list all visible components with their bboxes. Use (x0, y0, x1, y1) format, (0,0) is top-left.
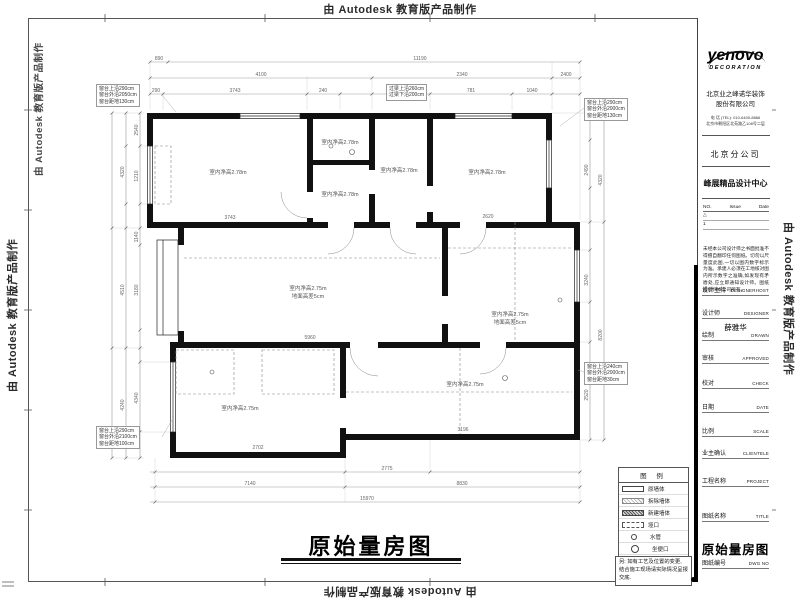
company-contact: 电 话 (TEL): 010-6400-8866 北京市朝阳区北苑路乙108号二… (698, 115, 772, 128)
svg-text:7140: 7140 (244, 481, 255, 487)
annotation-line: 窗台距地100cm (99, 441, 137, 447)
legend-item: 坐便口 (619, 543, 688, 555)
sheet-name: 原始量房图 (698, 539, 772, 558)
svg-text:2520: 2520 (584, 389, 590, 400)
window-annotation-2: 窗台上沿290cm 窗台外沿2000cm 窗台距地130cm (584, 98, 628, 121)
svg-text:3743: 3743 (229, 88, 240, 94)
opening-swatch-icon (622, 522, 644, 528)
legend-item: 原墙体 (619, 483, 688, 495)
svg-text:11190: 11190 (413, 56, 426, 62)
svg-text:4320: 4320 (598, 174, 604, 185)
annotation-line: 窗台外沿2000cm (587, 106, 625, 112)
annotation-line: 窗台外沿2000cm (587, 370, 625, 376)
door-arcs (281, 192, 506, 376)
beam-annotation: 过梁上沿260cm 过梁下沿200cm (386, 84, 427, 101)
svg-text:室内净高2.78m: 室内净高2.78m (468, 168, 506, 176)
svg-text:室内净高2.78m: 室内净高2.78m (321, 190, 359, 198)
svg-text:2340: 2340 (456, 72, 467, 78)
title-underline (281, 558, 461, 561)
svg-text:2490: 2490 (584, 164, 590, 175)
svg-text:15970: 15970 (360, 496, 374, 502)
svg-text:1140: 1140 (134, 231, 140, 242)
row-designerhost: 设计主持DESIGNERHOST (702, 285, 769, 296)
row-dwgno: 图纸编号DWG NO (702, 558, 769, 569)
legend-item: 拆除墙体 (619, 495, 688, 507)
annotation-line: 窗台外沿2100cm (99, 434, 137, 440)
svg-text:室内净高2.75m: 室内净高2.75m (446, 380, 484, 388)
svg-text:2775: 2775 (381, 466, 392, 472)
company-line: 北京业之峰诺华装饰 (698, 90, 772, 100)
legend-note: 另: 如有工艺及位置的变更, 结合施工现场请实际情况呈报交底. (615, 556, 692, 586)
row-drawn: 绘制DRAWN (702, 330, 769, 341)
issue-header: NO. Issue Date (703, 205, 769, 212)
legend: 图 例 原墙体 拆除墙体 新建墙体 垭口 水管 坐便口 地漏 (618, 467, 689, 567)
annotation-line: 窗台距地130cm (587, 113, 625, 119)
issue-table: NO. Issue Date △ 1 (703, 205, 769, 230)
svg-text:2620: 2620 (482, 214, 493, 220)
window-annotation-1: 窗台上沿290cm 窗台外沿2050cm 窗台距地130cm (96, 84, 140, 107)
branch-name: 北京分公司 (698, 149, 772, 160)
svg-text:781: 781 (467, 88, 476, 94)
svg-text:室内净高2.78m: 室内净高2.78m (321, 138, 359, 146)
title-underline (281, 563, 461, 564)
legend-item: 新建墙体 (619, 507, 688, 519)
toilet-outlet-icon (631, 545, 639, 553)
demolish-wall-swatch-icon (622, 498, 644, 504)
original-wall-swatch-icon (622, 486, 644, 492)
svg-text:1210: 1210 (134, 170, 140, 181)
window-annotation-4: 窗台上沿290cm 窗台外沿2100cm 窗台距地100cm (96, 426, 140, 449)
svg-text:4100: 4100 (255, 72, 266, 78)
svg-text:240: 240 (319, 88, 328, 94)
svg-text:3196: 3196 (457, 427, 468, 433)
walls (147, 113, 580, 458)
legend-label: 水管 (650, 533, 661, 541)
legend-label: 垭口 (648, 521, 659, 529)
legend-label: 坐便口 (652, 545, 669, 553)
svg-text:4240: 4240 (120, 399, 126, 410)
issue-row: 1 (703, 221, 769, 230)
annotation-line: 过梁下沿200cm (389, 92, 424, 98)
title-block-dot (691, 577, 696, 582)
legend-item: 垭口 (619, 519, 688, 531)
row-project: 工程名称PROJECT (702, 476, 769, 487)
svg-text:室内净高2.75m: 室内净高2.75m (491, 310, 529, 318)
company-name: 北京业之峰诺华装饰 股份有限公司 (698, 90, 772, 110)
svg-text:地面高差5cm: 地面高差5cm (494, 318, 527, 326)
svg-text:2540: 2540 (134, 124, 140, 135)
window-annotation-3: 窗台上沿240cm 窗台外沿2000cm 窗台距地30cm (584, 362, 628, 385)
row-scale: 比例SCALE (702, 426, 769, 437)
legend-title: 图 例 (619, 468, 688, 483)
row-clientele: 业主确认CLIENTELE (702, 448, 769, 459)
svg-text:4340: 4340 (134, 392, 140, 403)
dashed-elements (155, 146, 572, 434)
svg-text:室内净高2.78m: 室内净高2.78m (380, 166, 418, 174)
legend-item: 水管 (619, 531, 688, 543)
svg-text:4510: 4510 (120, 284, 126, 295)
row-approved: 审核APPROVED (702, 353, 769, 364)
svg-text:3743: 3743 (224, 215, 235, 221)
company-line: 股份有限公司 (698, 100, 772, 110)
svg-text:8830: 8830 (456, 481, 467, 487)
svg-text:地面高差5cm: 地面高差5cm (292, 292, 325, 300)
new-wall-swatch-icon (622, 510, 644, 516)
company-logo: yenovo DECORATION (698, 48, 772, 71)
row-title: 图纸名称TITLE (702, 511, 769, 522)
title-block-bar (694, 265, 698, 582)
svg-text:3240: 3240 (584, 274, 590, 285)
svg-text:3180: 3180 (134, 284, 140, 295)
title-block: yenovo DECORATION 北京业之峰诺华装饰 股份有限公司 电 话 (… (697, 18, 772, 582)
svg-text:890: 890 (155, 56, 164, 62)
annotation-line: 窗台距地130cm (99, 99, 137, 105)
svg-text:室内净高2.75m: 室内净高2.75m (289, 284, 327, 292)
issue-row: △ (703, 212, 769, 221)
svg-text:5960: 5960 (304, 335, 315, 341)
annotation-line: 窗台外沿2050cm (99, 92, 137, 98)
row-date: 日期DATE (702, 402, 769, 413)
legend-label: 拆除墙体 (648, 497, 670, 505)
legend-label: 新建墙体 (648, 509, 670, 517)
svg-text:室内净高2.75m: 室内净高2.75m (221, 404, 259, 412)
svg-text:290: 290 (152, 88, 161, 94)
legend-label: 原墙体 (648, 485, 665, 493)
svg-text:1040: 1040 (526, 88, 537, 94)
svg-text:2400: 2400 (560, 72, 571, 78)
water-pipe-icon (631, 534, 637, 540)
annotation-line: 窗台距地30cm (587, 377, 625, 383)
drawing-title: 原始量房图 (283, 529, 459, 561)
svg-text:4320: 4320 (120, 166, 126, 177)
svg-text:8200: 8200 (598, 329, 604, 340)
company-address: 北京市朝阳区北苑路乙108号二层 (698, 121, 772, 127)
svg-text:2702: 2702 (252, 445, 263, 451)
row-check: 校对CHECK (702, 378, 769, 389)
studio-name: 峰展精品设计中心 (698, 178, 772, 189)
svg-text:室内净高2.78m: 室内净高2.78m (209, 168, 247, 176)
